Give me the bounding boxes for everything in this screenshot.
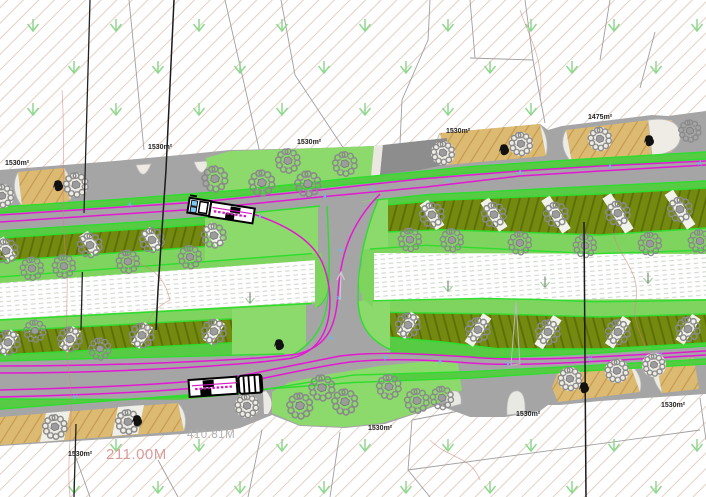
svg-text:1530m²: 1530m²	[297, 139, 322, 146]
svg-text:1530m²: 1530m²	[446, 128, 471, 135]
svg-text:1530m²: 1530m²	[148, 144, 173, 151]
svg-text:410.81M: 410.81M	[187, 429, 235, 441]
svg-text:1530m²: 1530m²	[516, 411, 541, 418]
svg-text:1530m²: 1530m²	[661, 402, 686, 409]
svg-text:1530m²: 1530m²	[368, 425, 393, 432]
svg-text:1530m²: 1530m²	[68, 451, 93, 458]
svg-text:1475m²: 1475m²	[588, 114, 613, 121]
svg-text:211.00M: 211.00M	[106, 446, 167, 463]
svg-text:1530m²: 1530m²	[5, 160, 30, 167]
